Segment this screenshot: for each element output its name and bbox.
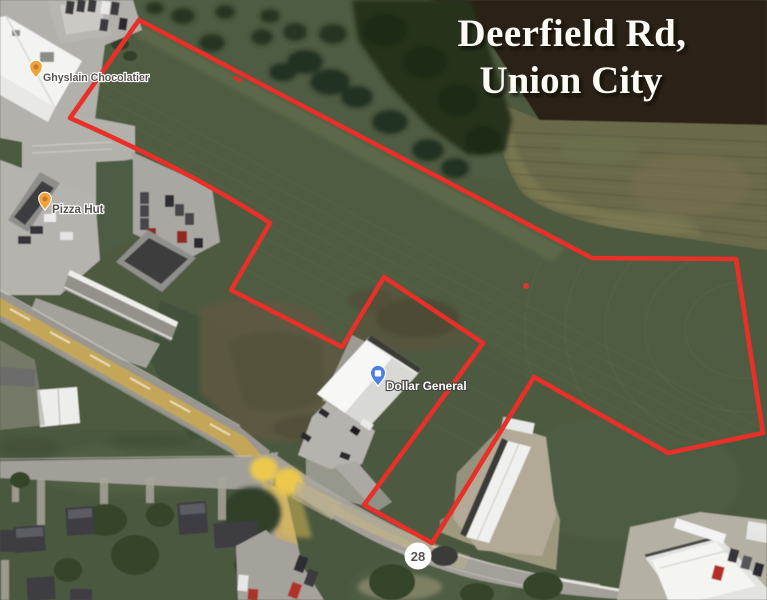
svg-text:Deerfield Rd,: Deerfield Rd,	[458, 12, 687, 55]
svg-text:28: 28	[411, 549, 425, 564]
svg-text:Union City: Union City	[479, 59, 663, 102]
svg-text:Ghyslain Chocolatier: Ghyslain Chocolatier	[43, 72, 149, 84]
svg-text:Dollar General: Dollar General	[386, 379, 467, 393]
svg-text:Pizza Hut: Pizza Hut	[52, 203, 104, 216]
